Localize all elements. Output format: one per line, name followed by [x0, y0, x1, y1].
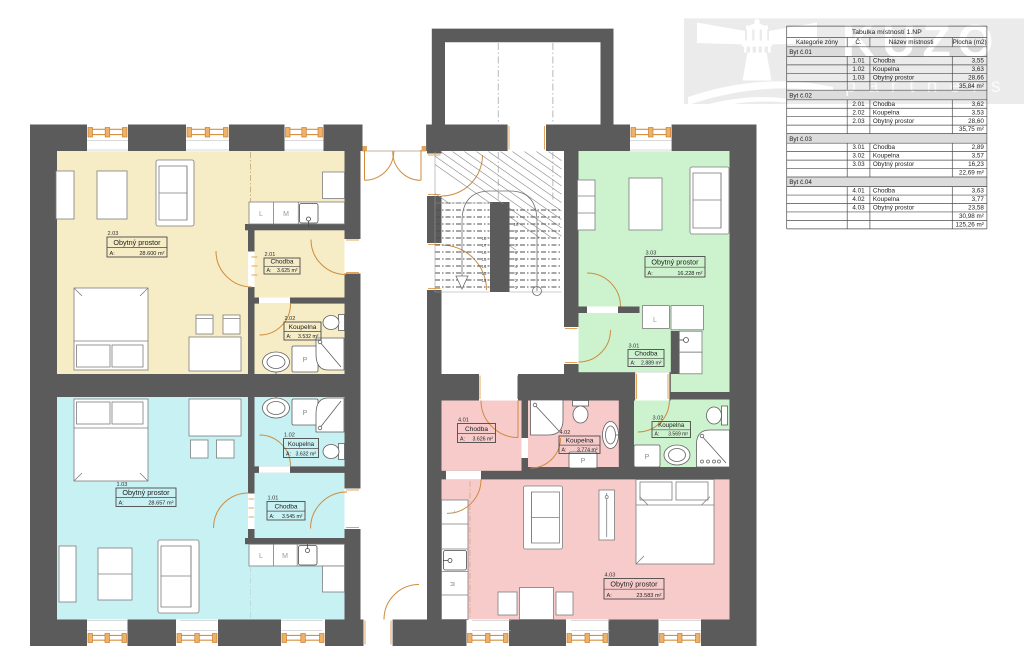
svg-text:Chodba: Chodba — [634, 351, 657, 358]
svg-text:Koupelna: Koupelna — [873, 153, 900, 160]
svg-text:A:: A: — [460, 436, 465, 442]
svg-text:Chodba: Chodba — [873, 101, 896, 108]
svg-text:3.569 m²: 3.569 m² — [668, 431, 688, 437]
svg-text:A:: A: — [287, 334, 292, 340]
svg-text:A:: A: — [631, 360, 636, 366]
svg-text:4.03: 4.03 — [852, 205, 865, 212]
svg-text:3.01: 3.01 — [629, 344, 640, 350]
svg-text:2,89: 2,89 — [972, 144, 985, 151]
svg-text:L: L — [259, 553, 263, 560]
svg-text:3,53: 3,53 — [972, 109, 985, 116]
svg-text:3.01: 3.01 — [852, 144, 865, 151]
svg-text:17: 17 — [481, 243, 487, 248]
svg-text:A:: A: — [648, 271, 654, 277]
svg-text:2.889 m²: 2.889 m² — [641, 360, 662, 366]
svg-text:P: P — [303, 357, 308, 364]
svg-text:A:: A: — [270, 514, 275, 520]
svg-text:Chodba: Chodba — [270, 259, 293, 266]
svg-text:3.03: 3.03 — [646, 251, 657, 257]
svg-text:3.545 m²: 3.545 m² — [282, 514, 303, 520]
svg-text:A:: A: — [110, 251, 116, 257]
svg-text:3.625 m²: 3.625 m² — [277, 268, 298, 274]
svg-text:Byt č.02: Byt č.02 — [789, 92, 812, 99]
svg-text:Koupelna: Koupelna — [288, 441, 315, 448]
svg-text:Koupelna: Koupelna — [873, 109, 900, 116]
svg-text:A:: A: — [267, 268, 272, 274]
svg-text:3,57: 3,57 — [972, 153, 985, 160]
svg-text:3,63: 3,63 — [972, 188, 985, 195]
svg-text:Obytný prostor: Obytný prostor — [873, 74, 914, 81]
svg-text:2.02: 2.02 — [285, 316, 296, 322]
svg-text:Byt č.04: Byt č.04 — [789, 179, 812, 186]
svg-text:1.02: 1.02 — [852, 66, 865, 73]
svg-text:Plocha (m2): Plocha (m2) — [953, 39, 987, 46]
svg-text:4.03: 4.03 — [605, 573, 616, 579]
svg-text:Koupelna: Koupelna — [658, 422, 685, 429]
svg-text:3.03: 3.03 — [852, 161, 865, 168]
svg-text:Obytný prostor: Obytný prostor — [873, 205, 914, 212]
svg-text:4.02: 4.02 — [560, 430, 571, 436]
svg-text:L: L — [653, 317, 657, 324]
svg-text:14: 14 — [481, 264, 487, 269]
svg-text:1.01: 1.01 — [268, 496, 279, 502]
svg-text:28,66: 28,66 — [968, 74, 984, 81]
svg-text:Obytný prostor: Obytný prostor — [651, 258, 699, 267]
svg-text:1.02: 1.02 — [284, 433, 295, 439]
svg-text:Obytný prostor: Obytný prostor — [873, 161, 914, 168]
svg-text:35,75 m²: 35,75 m² — [959, 126, 984, 133]
svg-text:2.02: 2.02 — [852, 109, 865, 116]
svg-text:15: 15 — [481, 257, 487, 262]
svg-text:16: 16 — [481, 250, 487, 255]
svg-text:3.02: 3.02 — [653, 416, 664, 422]
svg-text:3,77: 3,77 — [972, 196, 985, 203]
svg-text:3.532 m²: 3.532 m² — [298, 334, 319, 340]
svg-text:Koupelna: Koupelna — [566, 438, 594, 445]
svg-text:P: P — [303, 410, 308, 417]
svg-text:A:: A: — [562, 447, 567, 453]
svg-text:Obytný prostor: Obytný prostor — [610, 580, 658, 589]
svg-text:Koupelna: Koupelna — [873, 196, 900, 203]
svg-text:Koupelna: Koupelna — [289, 324, 317, 331]
svg-text:13: 13 — [481, 271, 487, 276]
svg-text:22,69 m²: 22,69 m² — [959, 170, 984, 177]
svg-text:1.03: 1.03 — [852, 74, 865, 81]
svg-text:2.03: 2.03 — [852, 118, 865, 125]
svg-text:4.01: 4.01 — [458, 418, 469, 424]
svg-text:M: M — [282, 553, 288, 560]
svg-text:A:: A: — [119, 500, 125, 506]
svg-text:3.02: 3.02 — [852, 153, 865, 160]
svg-text:10: 10 — [513, 222, 519, 227]
svg-text:M: M — [451, 582, 457, 587]
svg-text:28,60: 28,60 — [968, 118, 984, 125]
svg-text:28.600 m²: 28.600 m² — [139, 251, 164, 257]
svg-text:Obytný prostor: Obytný prostor — [873, 118, 914, 125]
svg-text:3.626 m²: 3.626 m² — [473, 436, 494, 442]
svg-text:Tabulka místností 1.NP: Tabulka místností 1.NP — [852, 29, 922, 36]
svg-text:Obytný prostor: Obytný prostor — [122, 488, 170, 497]
svg-text:18: 18 — [481, 236, 487, 241]
svg-text:Chodba: Chodba — [465, 426, 488, 433]
svg-text:Byt č.01: Byt č.01 — [789, 49, 812, 56]
svg-text:Chodba: Chodba — [274, 504, 297, 511]
svg-text:P: P — [581, 458, 586, 465]
svg-text:35,84 m²: 35,84 m² — [959, 83, 984, 90]
svg-text:A:: A: — [286, 451, 291, 457]
svg-text:Byt č.03: Byt č.03 — [789, 136, 812, 143]
svg-text:12: 12 — [481, 278, 487, 283]
svg-text:Kategorie zóny: Kategorie zóny — [796, 39, 839, 46]
svg-text:L: L — [259, 211, 263, 218]
svg-text:A:: A: — [607, 593, 613, 599]
svg-text:3.774 m²: 3.774 m² — [577, 447, 598, 453]
svg-text:4.02: 4.02 — [852, 196, 865, 203]
svg-text:Chodba: Chodba — [873, 57, 896, 64]
svg-text:4.01: 4.01 — [852, 188, 865, 195]
svg-text:125,26 m²: 125,26 m² — [956, 221, 984, 228]
svg-text:2.01: 2.01 — [852, 101, 865, 108]
svg-text:30,98 m²: 30,98 m² — [959, 213, 984, 220]
svg-text:2.01: 2.01 — [265, 252, 276, 258]
svg-text:3.632 m²: 3.632 m² — [296, 451, 317, 457]
svg-text:2.03: 2.03 — [108, 231, 119, 237]
svg-text:Chodba: Chodba — [873, 144, 896, 151]
svg-text:16.228 m²: 16.228 m² — [677, 271, 702, 277]
svg-text:Název místnosti: Název místnosti — [889, 39, 934, 46]
svg-text:23,58: 23,58 — [968, 205, 984, 212]
svg-text:28.657 m²: 28.657 m² — [148, 500, 173, 506]
svg-text:A:: A: — [655, 431, 660, 437]
svg-text:M: M — [283, 211, 289, 218]
svg-text:1.01: 1.01 — [852, 57, 865, 64]
svg-text:Chodba: Chodba — [873, 188, 896, 195]
svg-text:3,55: 3,55 — [972, 57, 985, 64]
svg-text:23.583 m²: 23.583 m² — [636, 593, 661, 599]
svg-text:3,63: 3,63 — [972, 66, 985, 73]
svg-text:Koupelna: Koupelna — [873, 66, 900, 73]
svg-text:3,62: 3,62 — [972, 101, 985, 108]
svg-text:Obytný prostor: Obytný prostor — [113, 238, 161, 247]
svg-text:P: P — [645, 454, 650, 461]
svg-text:16,23: 16,23 — [968, 161, 984, 168]
svg-text:Č.: Č. — [855, 37, 862, 46]
